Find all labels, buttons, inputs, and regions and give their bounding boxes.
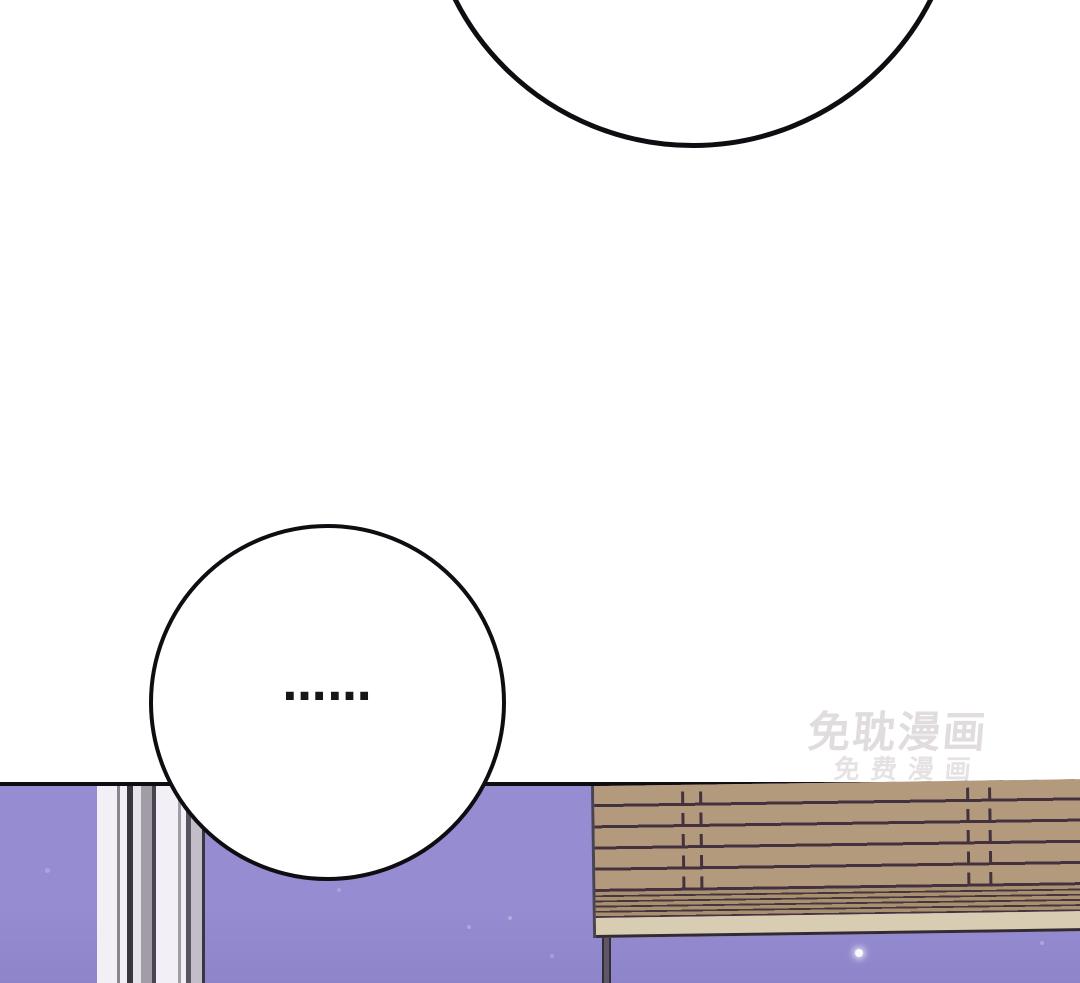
speech-bubble-top (424, 0, 962, 148)
ellipsis-text: …… (153, 664, 502, 708)
scene-panel (0, 782, 1080, 983)
comic-page: 免耽漫画 免费漫画 (0, 0, 1080, 983)
sparkle (550, 954, 554, 958)
door-frame-stripe (133, 786, 141, 983)
door-frame-stripe (141, 786, 152, 983)
bench-slats (594, 779, 1080, 892)
door-frame-stripe (120, 786, 127, 983)
sparkle (467, 925, 471, 929)
sparkle (855, 949, 863, 957)
sparkle (337, 888, 341, 892)
sparkle (508, 916, 512, 920)
sparkle (45, 868, 50, 873)
sparkle (1040, 941, 1044, 945)
door-frame-stripe (156, 786, 178, 983)
bench-leg (602, 936, 611, 983)
door-frame-stripe (97, 786, 117, 983)
bench (591, 779, 1080, 938)
speech-bubble-ellipsis: …… (149, 524, 506, 881)
